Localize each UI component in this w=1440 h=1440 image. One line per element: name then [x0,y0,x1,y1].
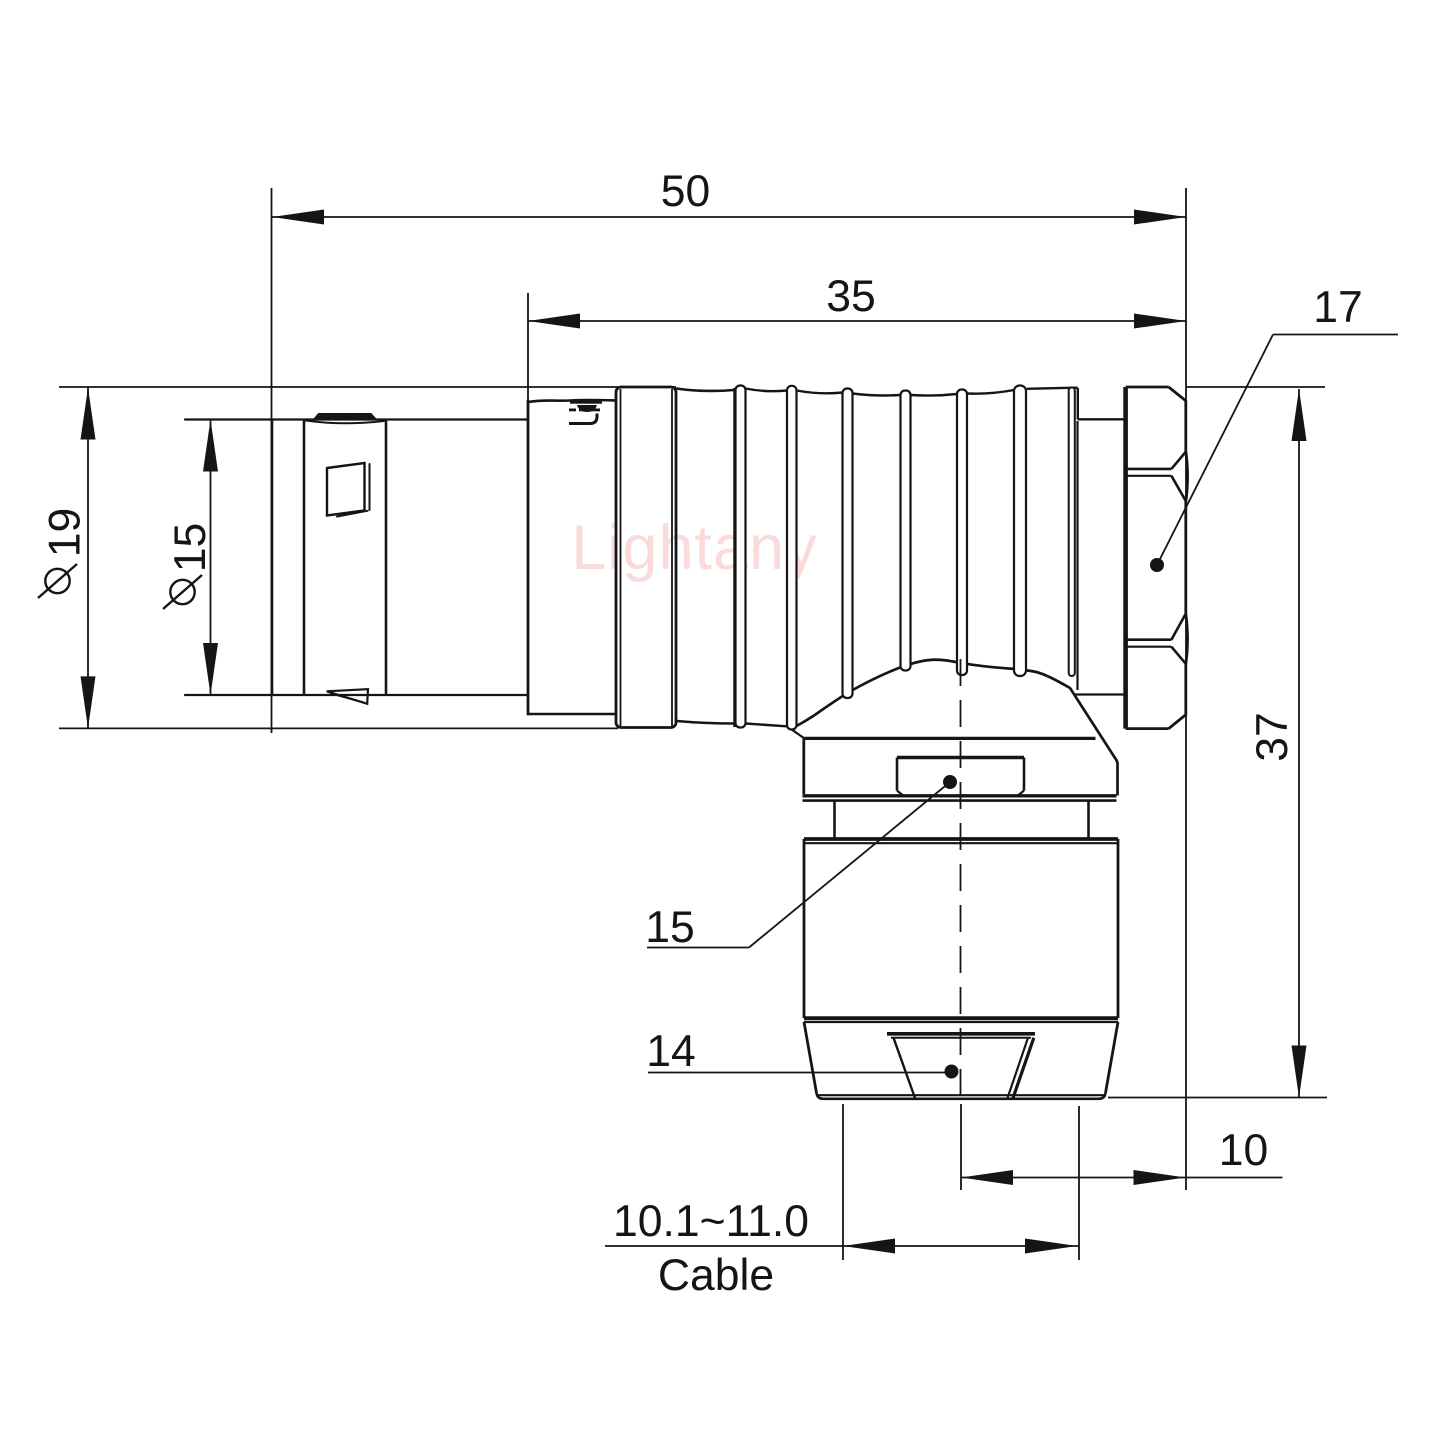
svg-text:15: 15 [645,903,695,952]
svg-text:10: 10 [1219,1126,1269,1175]
svg-text:19: 19 [40,508,89,558]
svg-text:50: 50 [661,167,711,216]
svg-text:17: 17 [1313,283,1363,332]
svg-text:14: 14 [646,1027,696,1076]
svg-text:35: 35 [826,272,876,321]
svg-text:37: 37 [1248,712,1297,762]
svg-text:Cable: Cable [658,1251,774,1300]
svg-text:10.1~11.0: 10.1~11.0 [613,1197,809,1246]
svg-text:15: 15 [166,523,215,573]
svg-text:Lightany: Lightany [571,513,817,583]
